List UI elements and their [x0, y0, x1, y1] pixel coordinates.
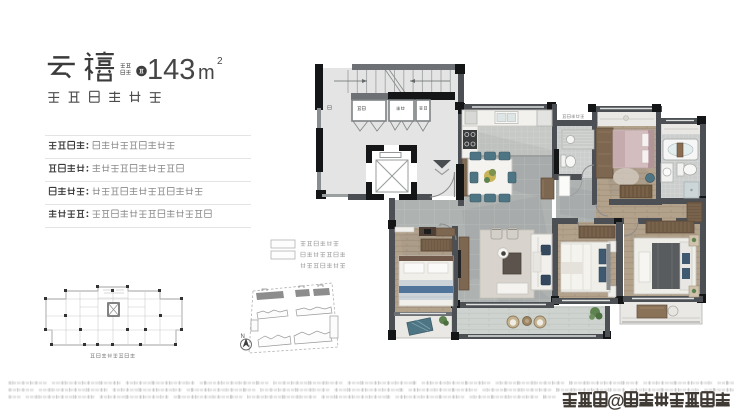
svg-text:2: 2: [217, 56, 223, 67]
svg-text:N: N: [241, 334, 245, 340]
svg-text:@: @: [607, 391, 625, 411]
svg-text:143: 143: [147, 54, 195, 86]
svg-text:m: m: [198, 62, 215, 84]
